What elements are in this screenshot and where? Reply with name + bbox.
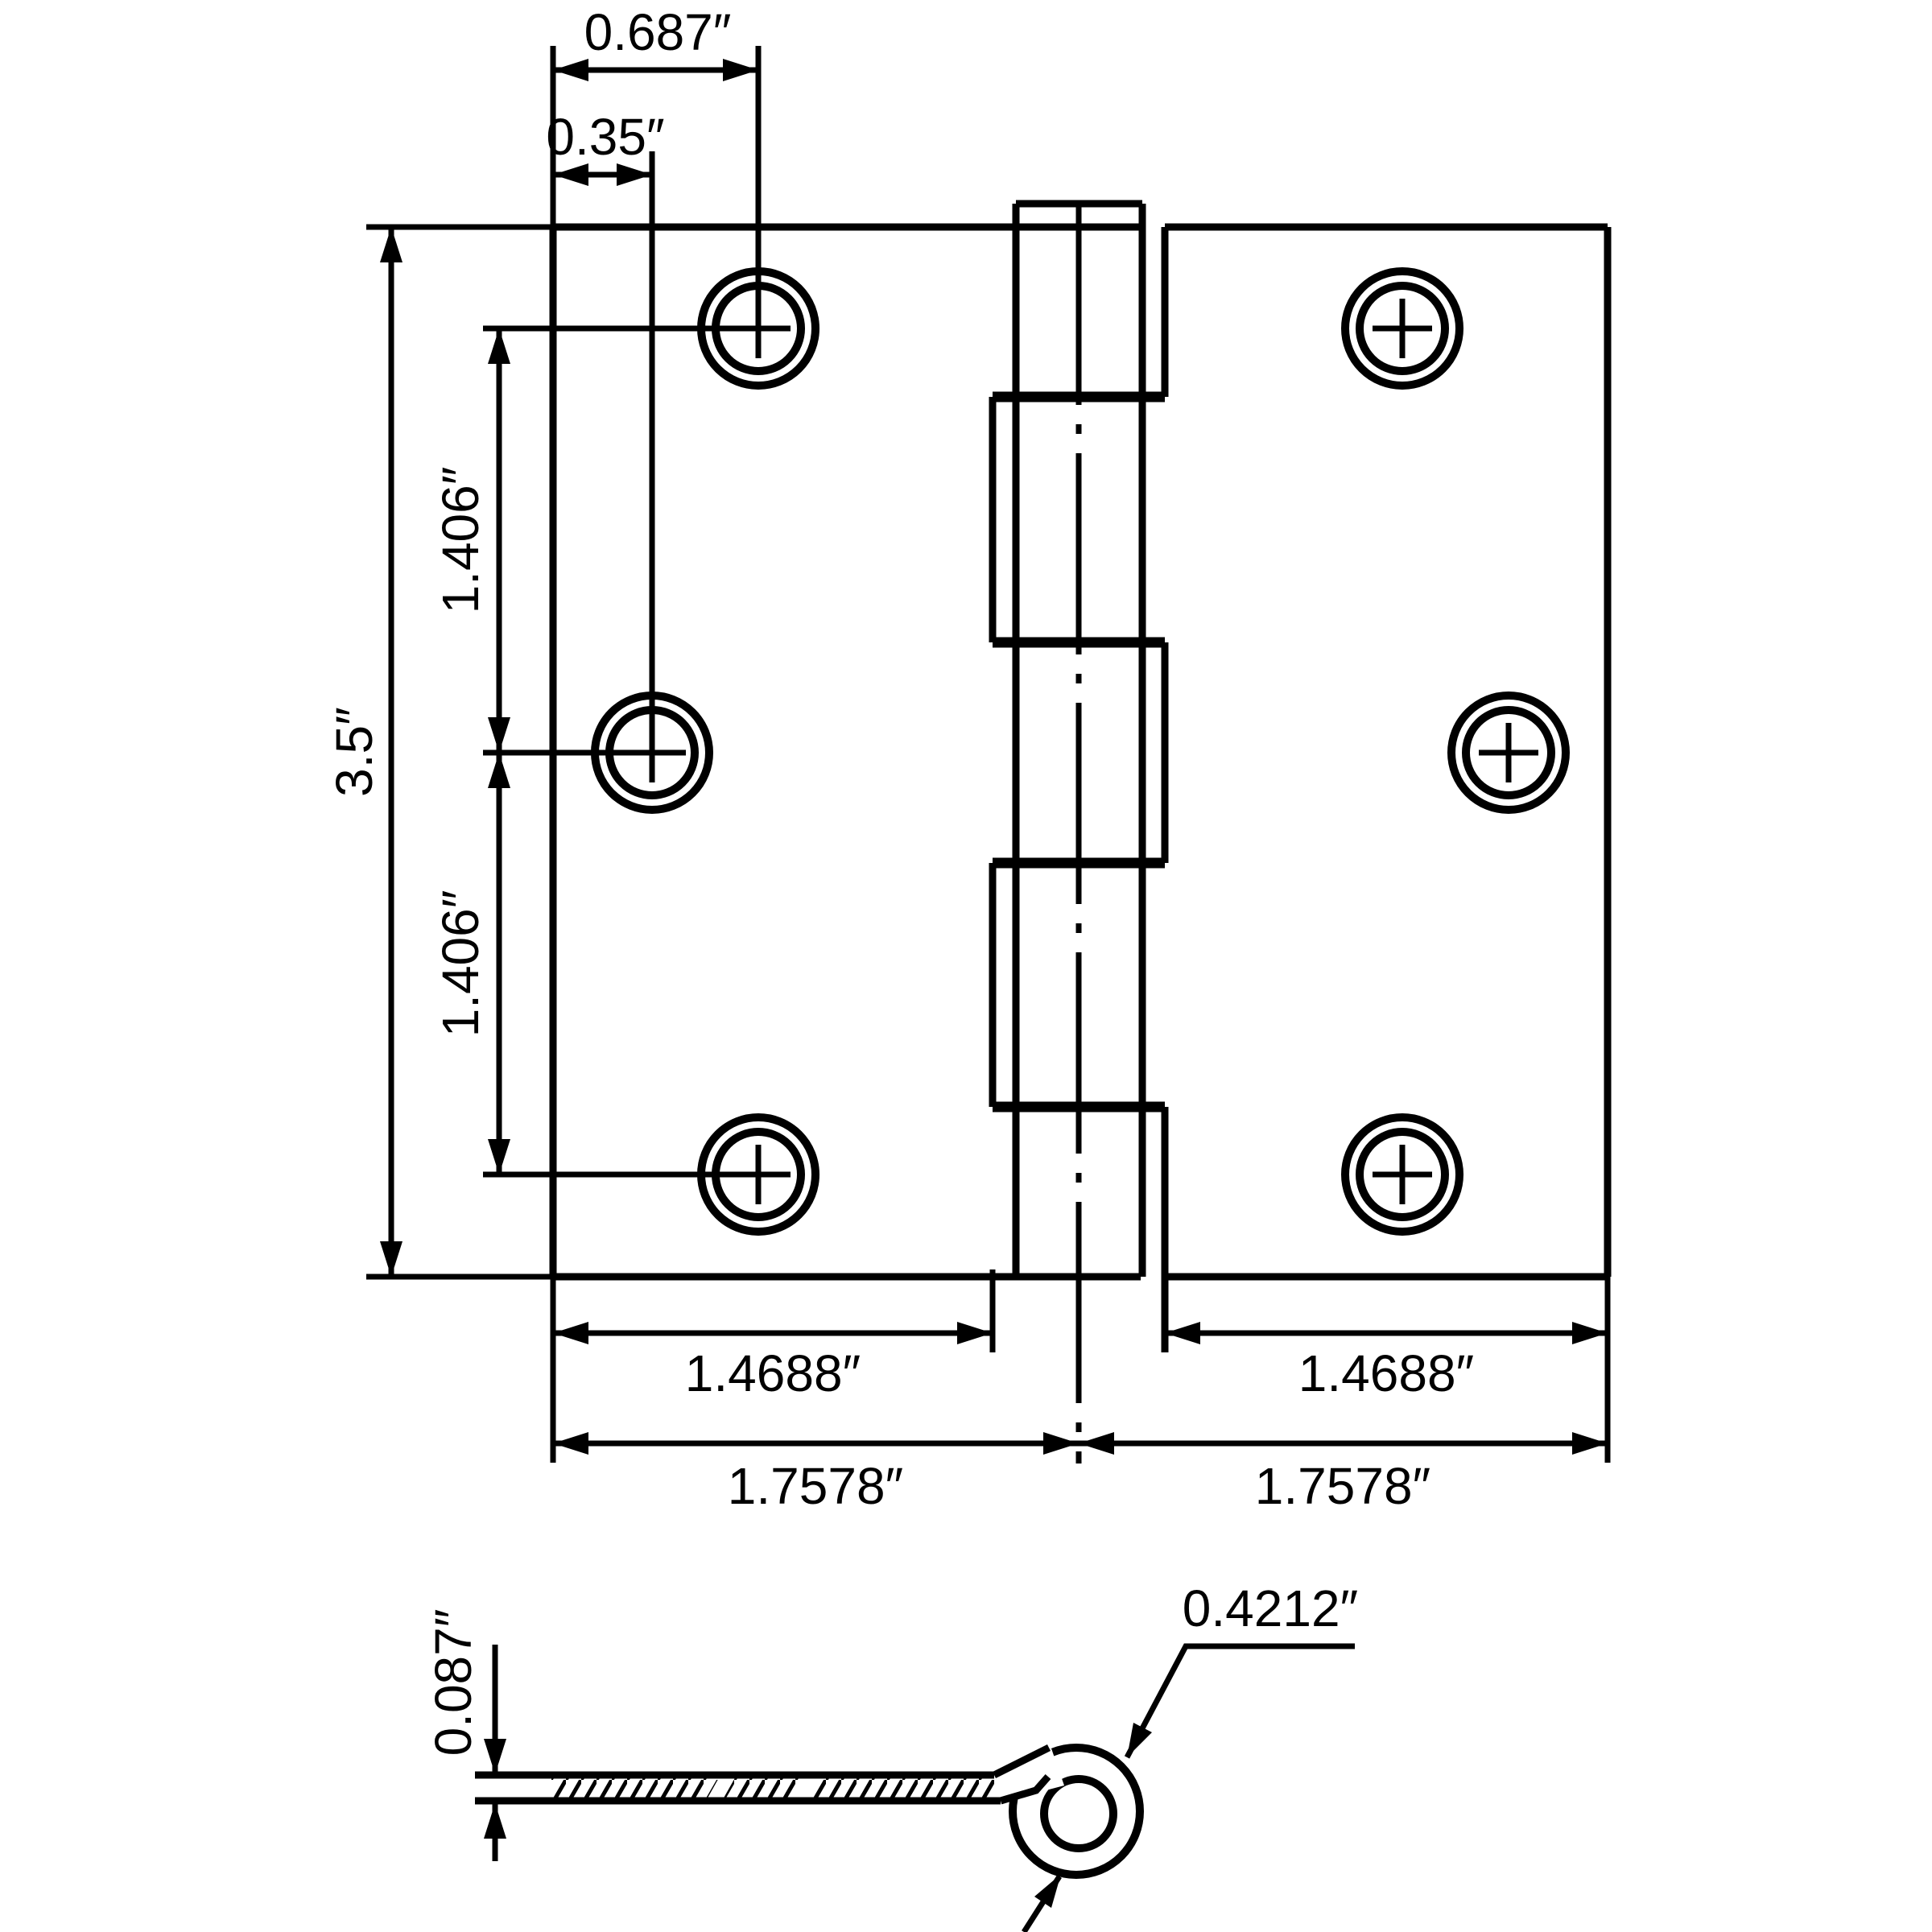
- arrowhead-left: [553, 163, 588, 186]
- curl-inner-circle: [1044, 1779, 1113, 1848]
- hinge-profile-view: 0.087″ 0.4212″: [424, 1579, 1358, 1932]
- arrowhead-up: [380, 227, 402, 262]
- arrowhead-up: [488, 753, 510, 788]
- arrowhead-right: [957, 1322, 993, 1344]
- dim-label: 1.406″: [431, 890, 489, 1038]
- arrowhead-right: [723, 59, 758, 81]
- dim-hole-inset: 0.35″: [546, 108, 664, 782]
- arrowhead-right: [1572, 1322, 1608, 1344]
- dim-leaf-width-left: 1.4688″: [553, 1269, 993, 1463]
- arrowhead-up: [488, 328, 510, 364]
- drawing-canvas: 0.687″ 0.35″ 3.5″ 1.406″ 1.4: [0, 0, 1932, 1932]
- arrowhead-left: [553, 59, 588, 81]
- arrowhead-center-right: [1043, 1432, 1079, 1455]
- arrowhead-down: [380, 1241, 402, 1277]
- dim-leaf-width-right: 1.4688″: [1165, 1277, 1608, 1463]
- dim-extension-lines: [483, 753, 791, 1174]
- dim-label: 0.4212″: [1183, 1579, 1358, 1637]
- leader-bottom: [1024, 1874, 1061, 1932]
- dim-hole-spacing-lower: 1.406″: [431, 753, 791, 1174]
- dim-label: 0.687″: [584, 3, 732, 61]
- pin-curl: [994, 1748, 1140, 1875]
- arrowhead-right: [617, 163, 652, 186]
- arrowhead-right: [1572, 1432, 1608, 1455]
- dim-extension-lines: [483, 328, 791, 753]
- arrowhead-down: [488, 717, 510, 753]
- dim-label: 1.4688″: [1298, 1344, 1474, 1402]
- dim-label: 1.406″: [431, 467, 489, 614]
- dim-hole-spacing-upper: 1.406″: [431, 328, 791, 753]
- dim-half-width-right: 1.7578″: [1079, 1432, 1608, 1515]
- dim-label: 1.7578″: [728, 1457, 903, 1515]
- arrowhead-left: [553, 1432, 588, 1455]
- leader-arrowhead: [1034, 1874, 1061, 1908]
- arrowhead-center-left: [1079, 1432, 1114, 1455]
- dim-extension-lines: [553, 151, 652, 782]
- dim-label: 1.4688″: [685, 1344, 861, 1402]
- dim-thickness: 0.087″: [424, 1609, 506, 1861]
- arrowhead-down: [488, 1139, 510, 1174]
- arrowhead-up: [484, 1803, 506, 1839]
- hinge-technical-drawing: 0.687″ 0.35″ 3.5″ 1.406″ 1.4: [0, 0, 1932, 1932]
- dim-label: 1.7578″: [1255, 1457, 1430, 1515]
- dim-label: 3.5″: [325, 707, 383, 797]
- dim-label: 0.35″: [546, 108, 664, 166]
- dim-label: 0.087″: [424, 1609, 482, 1757]
- arrowhead-left: [1165, 1322, 1200, 1344]
- leader-line: [1127, 1646, 1355, 1757]
- leaf-section-bar: [475, 1775, 1001, 1801]
- arrowhead-left: [553, 1322, 588, 1344]
- hole-center-crosses: [758, 299, 1538, 1204]
- section-hatch: [551, 1777, 994, 1799]
- dim-curl-diameter: 0.4212″: [1127, 1579, 1358, 1757]
- dim-extension-lines: [553, 46, 758, 358]
- leader-arrowhead: [1127, 1723, 1152, 1757]
- arrowhead-down: [484, 1739, 506, 1774]
- dim-half-width-left: 1.7578″: [553, 1432, 1079, 1515]
- hinge-front-view: 0.687″ 0.35″ 3.5″ 1.406″ 1.4: [325, 3, 1608, 1515]
